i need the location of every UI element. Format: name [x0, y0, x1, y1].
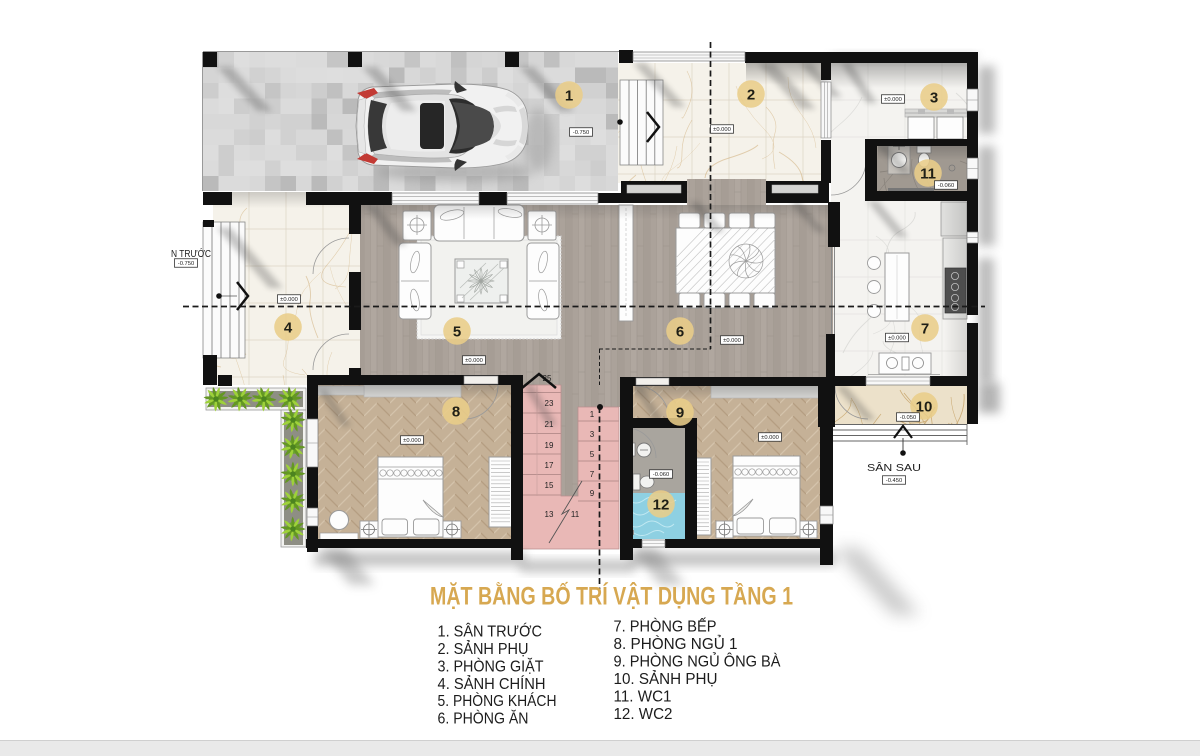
- svg-text:±0.000: ±0.000: [465, 358, 483, 364]
- svg-text:7: 7: [921, 321, 929, 338]
- svg-text:5: 5: [590, 450, 595, 459]
- svg-text:SÂN SAU: SÂN SAU: [867, 461, 921, 474]
- svg-text:12: 12: [653, 497, 670, 514]
- svg-text:-0.750: -0.750: [573, 130, 589, 136]
- svg-text:-0.060: -0.060: [938, 183, 954, 189]
- svg-text:13: 13: [545, 510, 554, 519]
- svg-text:3: 3: [590, 430, 595, 439]
- svg-text:-0.050: -0.050: [900, 415, 916, 421]
- svg-text:7: 7: [590, 470, 595, 479]
- svg-text:2. SẢNH PHỤ: 2. SẢNH PHỤ: [438, 641, 529, 658]
- svg-text:±0.000: ±0.000: [280, 297, 298, 303]
- svg-text:10. SẢNH PHỤ: 10. SẢNH PHỤ: [614, 671, 718, 688]
- svg-text:15: 15: [545, 481, 554, 490]
- svg-text:±0.000: ±0.000: [761, 435, 779, 441]
- svg-text:9: 9: [590, 489, 595, 498]
- svg-text:4: 4: [284, 320, 293, 337]
- svg-text:11. WC1: 11. WC1: [614, 689, 672, 706]
- svg-text:9. PHÒNG NGỦ ÔNG BÀ: 9. PHÒNG NGỦ ÔNG BÀ: [614, 653, 782, 671]
- svg-text:7. PHÒNG BẾP: 7. PHÒNG BẾP: [614, 619, 717, 636]
- svg-text:3. PHÒNG GIẶT: 3. PHÒNG GIẶT: [438, 658, 544, 675]
- svg-text:9: 9: [676, 405, 684, 422]
- svg-text:8. PHÒNG NGỦ 1: 8. PHÒNG NGỦ 1: [614, 635, 738, 653]
- svg-text:11: 11: [920, 166, 936, 183]
- svg-text:11: 11: [571, 510, 580, 519]
- svg-text:±0.000: ±0.000: [403, 438, 421, 444]
- svg-text:±0.000: ±0.000: [723, 338, 741, 344]
- svg-text:N TRƯỚC: N TRƯỚC: [171, 247, 211, 260]
- svg-text:1. SÂN TRƯỚC: 1. SÂN TRƯỚC: [438, 624, 543, 641]
- svg-text:3: 3: [930, 90, 938, 107]
- svg-text:1: 1: [590, 410, 595, 419]
- svg-text:8: 8: [452, 404, 460, 421]
- svg-text:1: 1: [565, 88, 573, 105]
- svg-text:±0.000: ±0.000: [884, 97, 902, 103]
- svg-text:4. SẢNH CHÍNH: 4. SẢNH CHÍNH: [438, 676, 546, 693]
- svg-text:±0.000: ±0.000: [888, 336, 906, 342]
- svg-text:6. PHÒNG ĂN: 6. PHÒNG ĂN: [438, 711, 529, 728]
- svg-text:2: 2: [747, 87, 755, 104]
- svg-text:MẶT BẰNG BỐ TRÍ VẬT DỤNG TẦNG: MẶT BẰNG BỐ TRÍ VẬT DỤNG TẦNG 1: [430, 581, 793, 611]
- svg-text:-0.750: -0.750: [178, 261, 194, 267]
- svg-text:12. WC2: 12. WC2: [614, 706, 673, 723]
- svg-text:6: 6: [676, 324, 684, 341]
- svg-text:19: 19: [545, 441, 554, 450]
- svg-text:17: 17: [545, 461, 554, 470]
- svg-text:-0.060: -0.060: [653, 472, 669, 478]
- svg-text:5. PHÒNG KHÁCH: 5. PHÒNG KHÁCH: [438, 693, 557, 710]
- svg-text:5: 5: [453, 324, 461, 341]
- svg-text:-0.450: -0.450: [886, 478, 902, 484]
- svg-text:±0.000: ±0.000: [713, 127, 731, 133]
